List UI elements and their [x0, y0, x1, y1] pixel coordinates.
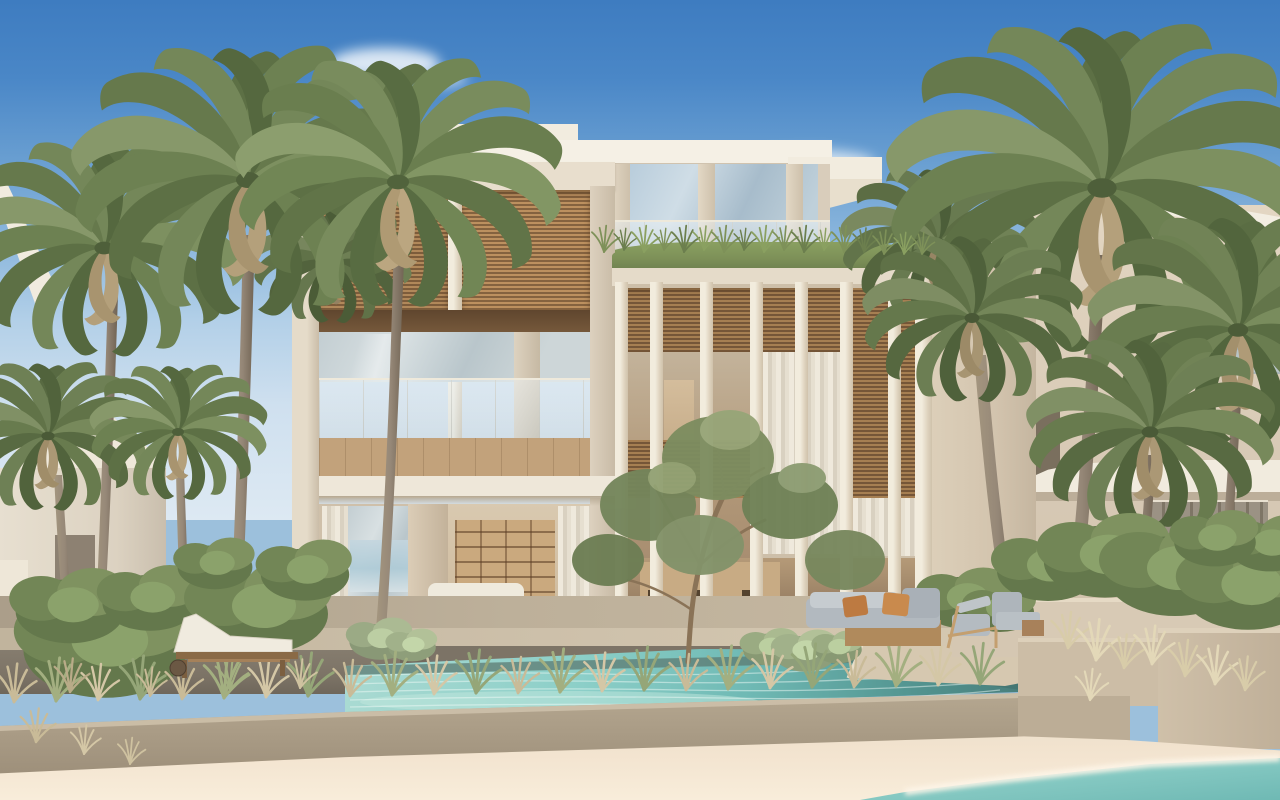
villa-rendering [0, 0, 1280, 800]
sea [0, 0, 1280, 800]
sand-tufts [21, 708, 146, 764]
